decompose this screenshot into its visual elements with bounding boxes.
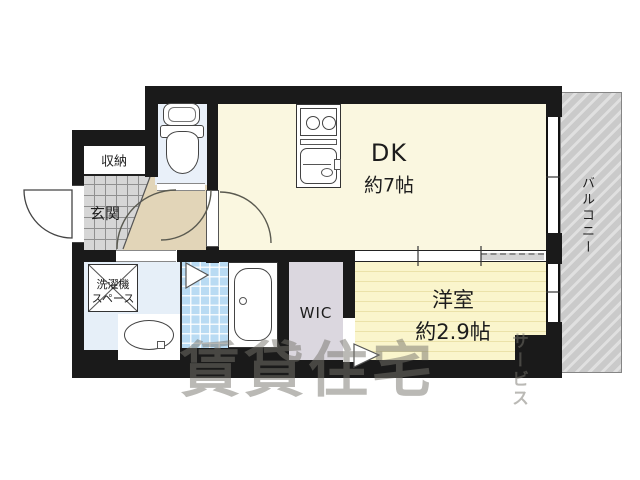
storage-label: 収納 — [101, 151, 127, 170]
wall-under-washroom — [72, 350, 118, 362]
bathroom-tile-floor — [180, 262, 228, 352]
wall-toilet-east — [207, 86, 218, 191]
sliding-door-panel-closet — [481, 253, 544, 260]
window-dk-balcony — [546, 117, 560, 233]
kitchen-stove-icon — [300, 108, 337, 136]
floorplan: DK 約7帖 洋室 約2.9帖 WIC 玄関 収納 洗濯機 スペース バルコニー… — [0, 0, 640, 480]
wall-right-mid — [546, 233, 562, 264]
western-size-label: 約2.9帖 — [415, 316, 490, 346]
kitchen-divider — [300, 139, 337, 145]
bathtub-drain — [239, 297, 247, 305]
washbasin-faucet — [157, 341, 165, 349]
dk-door-leaf — [206, 190, 219, 247]
wall-storage-right — [145, 146, 158, 177]
wall-bottom — [72, 360, 562, 378]
wic-door-opening — [343, 318, 355, 362]
balcony-label: バルコニー — [577, 176, 596, 296]
toilet-door-opening — [157, 183, 205, 191]
kitchen-sink-icon — [300, 148, 337, 184]
washbasin-icon — [124, 320, 174, 350]
wall-mid-left — [72, 250, 118, 262]
entrance-door-opening — [72, 185, 84, 243]
dk-size-label: 約7帖 — [364, 171, 414, 198]
window-western-balcony — [546, 264, 560, 322]
bathtub-icon — [234, 268, 272, 341]
western-room-label: 洋室 — [432, 284, 474, 314]
toilet-bowl — [166, 131, 199, 174]
washroom-door-opening — [116, 250, 176, 262]
wic-label: WIC — [300, 304, 333, 322]
toilet-icon — [163, 103, 200, 126]
laundry-label-line2: スペース — [92, 290, 135, 306]
wall-column-southeast — [515, 335, 560, 378]
wall-right-top — [546, 86, 562, 117]
wall-under-bath — [180, 348, 280, 362]
sliding-door-partition — [355, 250, 546, 262]
wall-storage-top — [72, 130, 158, 146]
entrance-door-swing — [24, 190, 72, 238]
entrance-label: 玄関 — [90, 203, 120, 224]
wall-wic-east — [343, 250, 355, 318]
wall-wic-west — [277, 250, 289, 378]
dk-room-label: DK — [371, 139, 407, 167]
wall-mid-center — [177, 250, 355, 262]
wall-dk-door-hinge — [206, 247, 219, 263]
